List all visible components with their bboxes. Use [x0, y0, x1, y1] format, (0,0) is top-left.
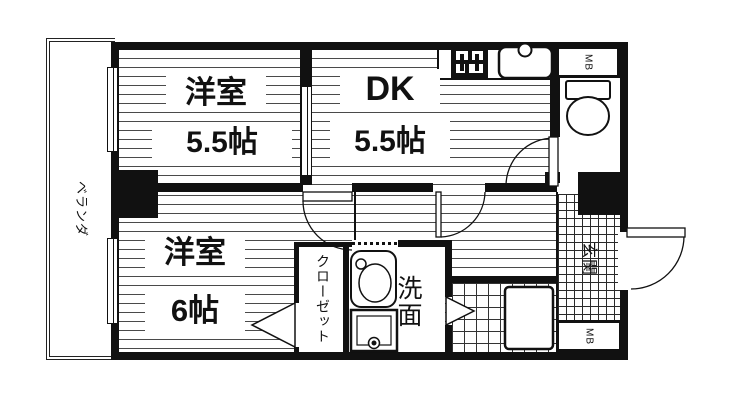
vanity-sink-icon: [351, 251, 396, 307]
toilet-door: [506, 137, 558, 186]
gas-stove-icon: [451, 46, 488, 78]
dk-corridor-door: [436, 192, 485, 237]
toilet-icon: [566, 81, 610, 135]
washing-machine-pan-icon: [351, 310, 397, 351]
bedroom2-door: [303, 192, 352, 250]
entrance-door: [627, 228, 685, 289]
bathroom-folding-door: [446, 297, 474, 325]
fixtures-layer: [0, 0, 729, 408]
bathtub-icon: [505, 287, 553, 349]
closet-bifold-door: [252, 303, 295, 347]
floorplan: ベランダ MB MB 洋室 5.5帖 DK 5.5: [0, 0, 729, 408]
kitchen-sink-icon: [499, 44, 552, 79]
